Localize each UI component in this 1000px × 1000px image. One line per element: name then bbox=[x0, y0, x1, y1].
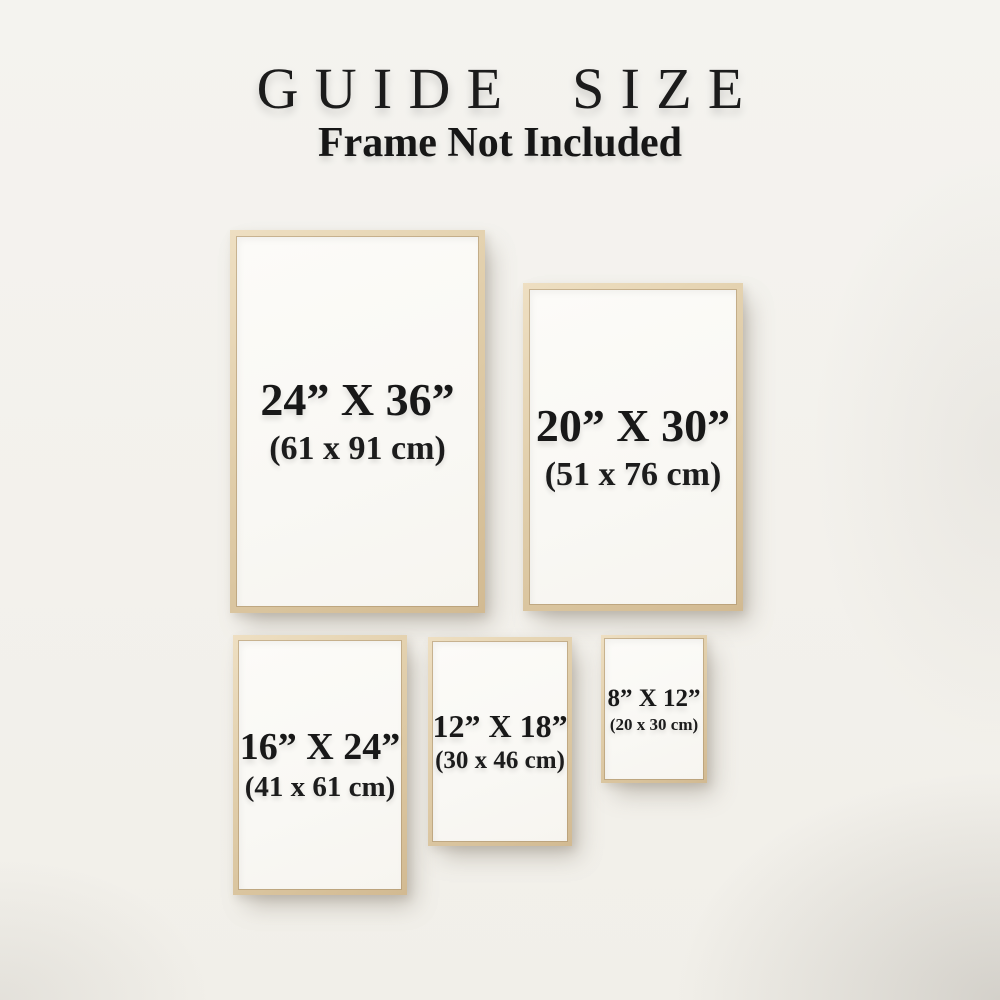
frame-size-cm: (61 x 91 cm) bbox=[269, 432, 446, 466]
poster-20x30: 20” X 30” (51 x 76 cm) bbox=[530, 290, 736, 604]
frame-size-inches: 16” X 24” bbox=[240, 728, 400, 766]
frame-8x12: 8” X 12” (20 x 30 cm) bbox=[601, 635, 707, 783]
frame-size-cm: (51 x 76 cm) bbox=[545, 458, 722, 492]
frame-16x24: 16” X 24” (41 x 61 cm) bbox=[233, 635, 407, 895]
poster-16x24: 16” X 24” (41 x 61 cm) bbox=[239, 641, 401, 889]
frame-12x18: 12” X 18” (30 x 46 cm) bbox=[428, 637, 572, 846]
frame-size-inches: 8” X 12” bbox=[607, 686, 700, 711]
frame-24x36: 24” X 36” (61 x 91 cm) bbox=[230, 230, 485, 613]
frame-size-inches: 20” X 30” bbox=[536, 403, 730, 449]
frame-size-cm: (41 x 61 cm) bbox=[245, 773, 396, 802]
poster-12x18: 12” X 18” (30 x 46 cm) bbox=[433, 642, 567, 841]
frame-size-inches: 12” X 18” bbox=[432, 710, 567, 742]
frame-size-cm: (30 x 46 cm) bbox=[435, 748, 565, 773]
page-title: GUIDE SIZE bbox=[0, 60, 1000, 118]
page-subtitle: Frame Not Included bbox=[0, 122, 1000, 164]
poster-8x12: 8” X 12” (20 x 30 cm) bbox=[605, 639, 703, 779]
poster-24x36: 24” X 36” (61 x 91 cm) bbox=[237, 237, 478, 606]
frame-size-inches: 24” X 36” bbox=[260, 377, 454, 423]
frame-20x30: 20” X 30” (51 x 76 cm) bbox=[523, 283, 743, 611]
size-guide-image: GUIDE SIZE Frame Not Included 24” X 36” … bbox=[0, 0, 1000, 1000]
frame-size-cm: (20 x 30 cm) bbox=[610, 716, 698, 733]
